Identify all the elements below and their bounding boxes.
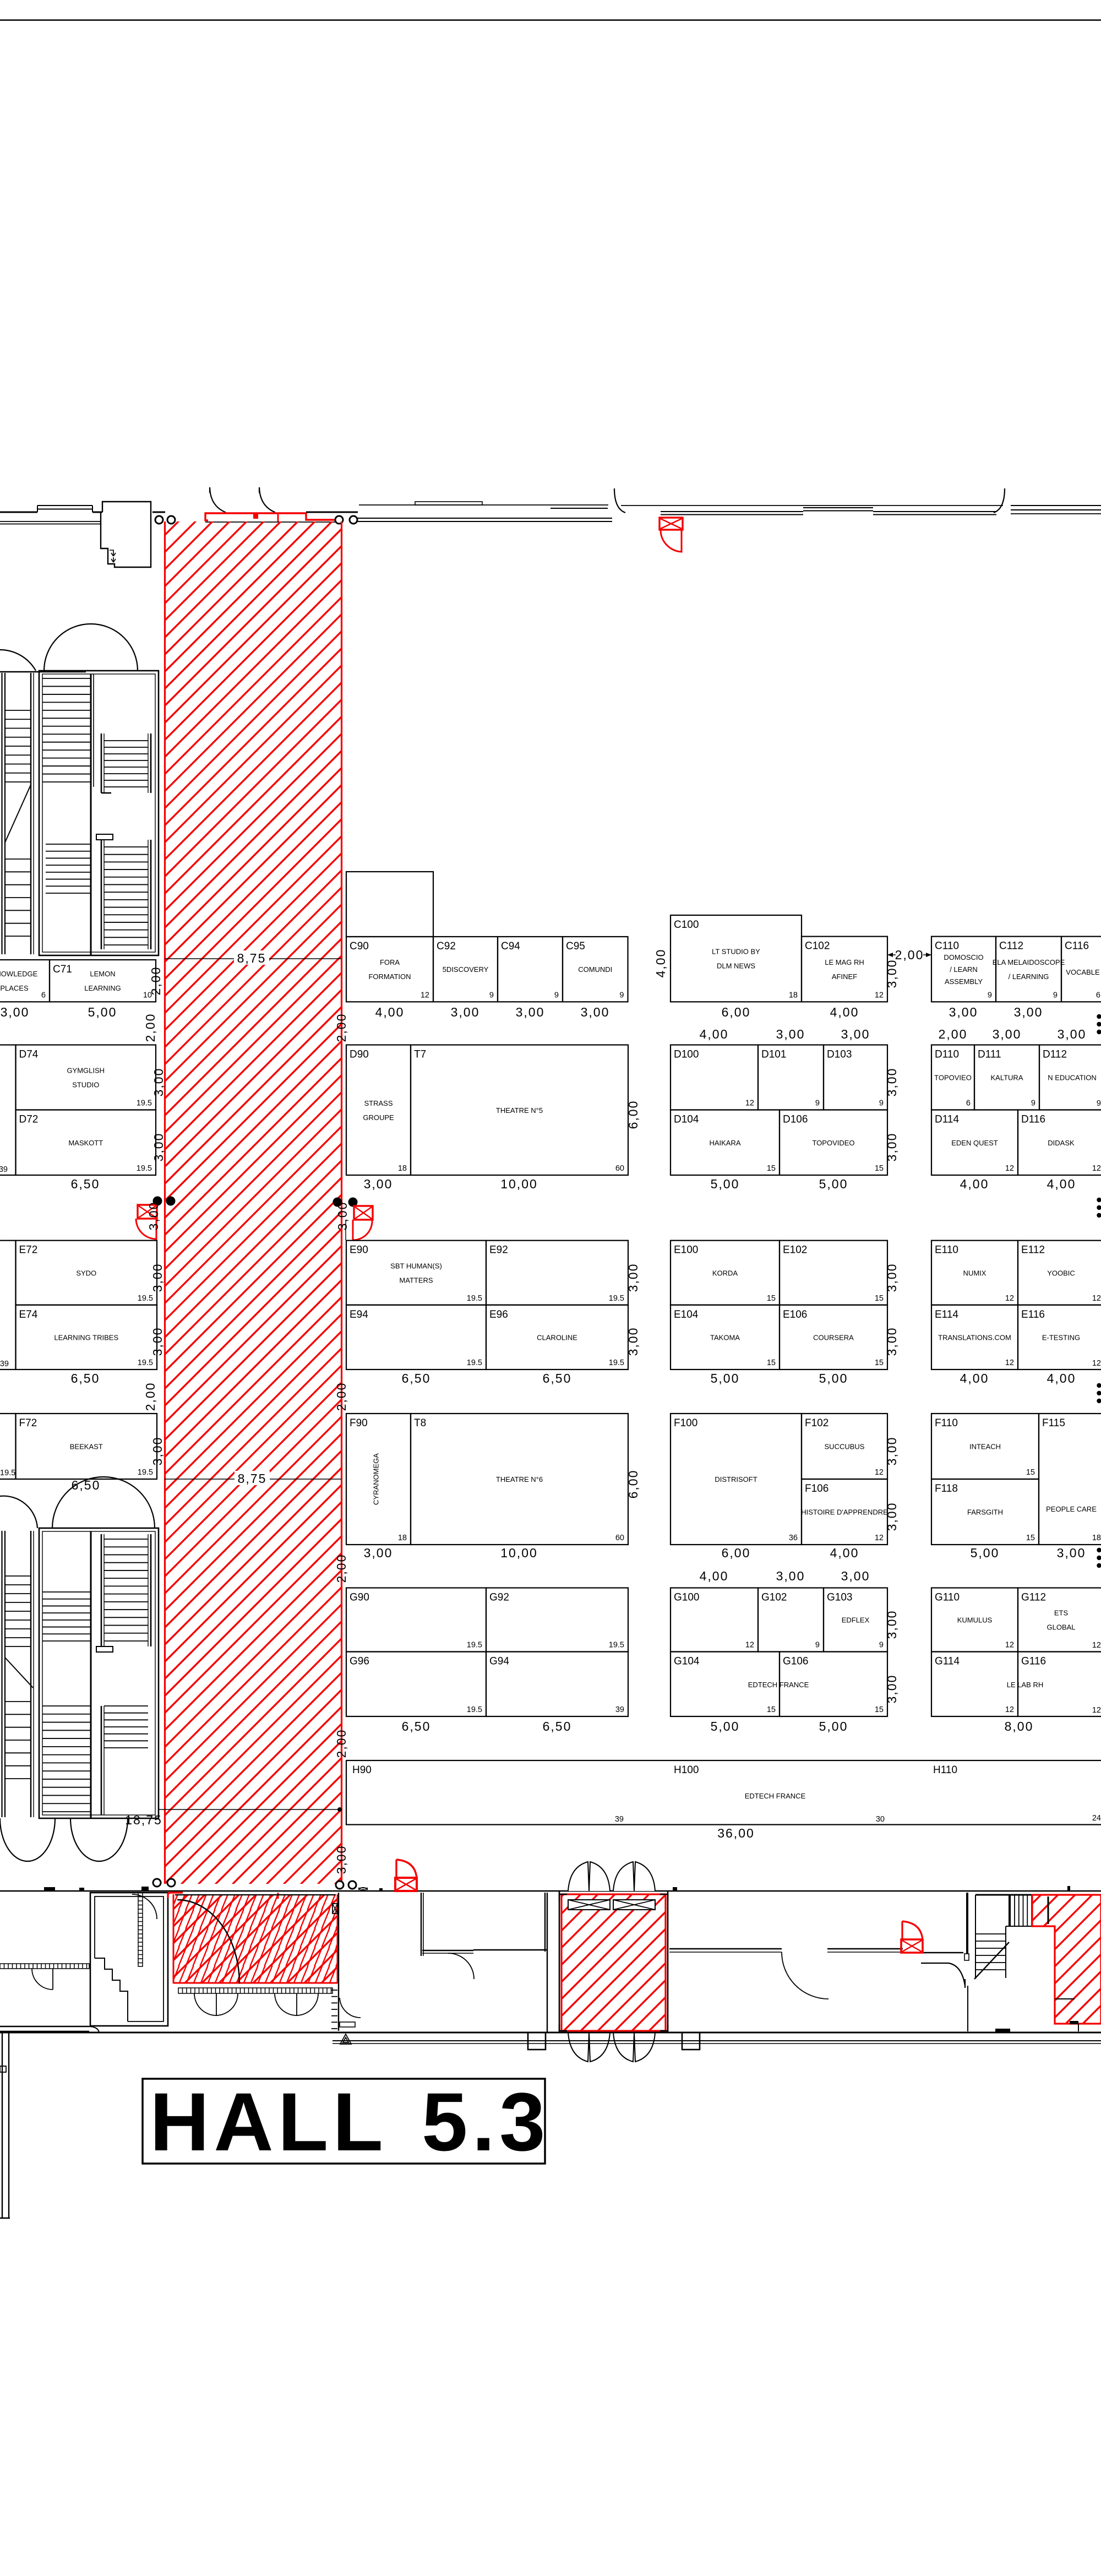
svg-text:6,50: 6,50 xyxy=(71,1177,100,1191)
svg-text:18: 18 xyxy=(398,1534,407,1542)
svg-text:5,00: 5,00 xyxy=(819,1719,848,1733)
svg-text:C110: C110 xyxy=(935,941,959,952)
svg-text:THEATRE N°5: THEATRE N°5 xyxy=(496,1106,543,1115)
svg-text:G106: G106 xyxy=(783,1656,808,1667)
svg-text:AFINEF: AFINEF xyxy=(832,972,857,981)
svg-text:VOCABLE: VOCABLE xyxy=(1066,968,1100,976)
svg-text:8,75: 8,75 xyxy=(238,1471,267,1486)
svg-text:18: 18 xyxy=(789,991,798,999)
svg-text:12: 12 xyxy=(875,1534,884,1542)
svg-text:12: 12 xyxy=(1092,1164,1101,1173)
svg-text:3,00: 3,00 xyxy=(334,1845,348,1874)
svg-text:5DISCOVERY: 5DISCOVERY xyxy=(443,965,489,974)
svg-text:3,00: 3,00 xyxy=(776,1569,805,1583)
svg-text:E114: E114 xyxy=(935,1309,958,1320)
svg-text:KALTURA: KALTURA xyxy=(991,1074,1023,1082)
svg-text:3,00: 3,00 xyxy=(885,1133,899,1162)
svg-text:15: 15 xyxy=(875,1294,884,1303)
svg-text:3,00: 3,00 xyxy=(516,1005,545,1019)
svg-text:5,00: 5,00 xyxy=(971,1546,1000,1560)
svg-text:STUDIO: STUDIO xyxy=(72,1081,99,1089)
svg-text:F102: F102 xyxy=(805,1417,829,1429)
svg-text:19.5: 19.5 xyxy=(137,1099,152,1108)
svg-text:DOMOSCIO: DOMOSCIO xyxy=(944,953,983,961)
svg-text:EDTECH FRANCE: EDTECH FRANCE xyxy=(745,1792,806,1800)
svg-text:KUMULUS: KUMULUS xyxy=(957,1616,993,1624)
svg-text:D103: D103 xyxy=(827,1049,852,1061)
svg-text:SBT HUMAN(S): SBT HUMAN(S) xyxy=(390,1262,442,1270)
svg-text:2,00: 2,00 xyxy=(939,1027,968,1041)
svg-text:3,00: 3,00 xyxy=(1,1005,30,1019)
svg-text:30: 30 xyxy=(876,1815,885,1824)
svg-text:D100: D100 xyxy=(674,1049,699,1061)
svg-text:ELA MELAIDOSCOPE: ELA MELAIDOSCOPE xyxy=(993,958,1065,966)
svg-text:LEARNING TRIBES: LEARNING TRIBES xyxy=(54,1333,118,1341)
svg-text:2,00: 2,00 xyxy=(334,1554,348,1583)
svg-text:G112: G112 xyxy=(1021,1592,1046,1604)
svg-text:ETS: ETS xyxy=(1054,1609,1069,1617)
svg-text:C112: C112 xyxy=(999,941,1023,952)
svg-text:4,00: 4,00 xyxy=(1047,1371,1076,1385)
svg-text:19.5: 19.5 xyxy=(467,1358,482,1367)
svg-text:12: 12 xyxy=(1005,1164,1014,1173)
svg-text:19.5: 19.5 xyxy=(467,1294,482,1303)
svg-text:LE MAG RH: LE MAG RH xyxy=(825,958,864,966)
svg-text:18: 18 xyxy=(398,1164,407,1173)
svg-text:19.5: 19.5 xyxy=(467,1705,482,1714)
svg-text:E92: E92 xyxy=(489,1244,508,1256)
svg-text:9: 9 xyxy=(1097,1099,1101,1108)
svg-text:9: 9 xyxy=(815,1641,820,1650)
svg-text:4,00: 4,00 xyxy=(700,1027,729,1041)
svg-text:EDEN QUEST: EDEN QUEST xyxy=(951,1139,998,1147)
svg-text:15: 15 xyxy=(875,1164,884,1173)
svg-text:2,00: 2,00 xyxy=(149,966,163,996)
svg-text:G94: G94 xyxy=(489,1656,509,1667)
svg-text:FARSGITH: FARSGITH xyxy=(967,1508,1003,1517)
svg-text:6,50: 6,50 xyxy=(543,1719,572,1733)
svg-text:24: 24 xyxy=(1092,1814,1101,1823)
svg-text:H110: H110 xyxy=(933,1764,957,1776)
svg-text:E96: E96 xyxy=(489,1309,508,1320)
svg-text:4,00: 4,00 xyxy=(375,1005,405,1019)
svg-text:4,00: 4,00 xyxy=(960,1371,989,1385)
svg-text:9: 9 xyxy=(619,991,624,999)
svg-text:6,00: 6,00 xyxy=(722,1546,751,1560)
svg-text:D72: D72 xyxy=(19,1114,39,1126)
svg-text:12: 12 xyxy=(1005,1705,1014,1714)
svg-text:60: 60 xyxy=(615,1534,624,1542)
svg-text:12: 12 xyxy=(875,1468,884,1477)
svg-text:12: 12 xyxy=(745,1099,754,1108)
svg-text:3,00: 3,00 xyxy=(335,1202,350,1231)
svg-text:F72: F72 xyxy=(19,1417,37,1429)
svg-text:KORDA: KORDA xyxy=(712,1269,738,1277)
svg-text:BEEKAST: BEEKAST xyxy=(70,1443,103,1451)
svg-text:8,00: 8,00 xyxy=(1005,1719,1034,1733)
svg-text:3,00: 3,00 xyxy=(150,1263,165,1292)
svg-text:LEMON: LEMON xyxy=(90,970,115,978)
svg-text:E-TESTING: E-TESTING xyxy=(1042,1333,1080,1341)
svg-text:19.5: 19.5 xyxy=(609,1294,624,1303)
svg-text:F106: F106 xyxy=(805,1483,829,1494)
svg-text:10,00: 10,00 xyxy=(500,1546,538,1560)
svg-text:6,00: 6,00 xyxy=(722,1005,751,1019)
svg-text:GLOBAL: GLOBAL xyxy=(1047,1623,1075,1632)
svg-text:LT STUDIO BY: LT STUDIO BY xyxy=(712,948,760,956)
svg-text:3,00: 3,00 xyxy=(949,1005,978,1019)
svg-text:3,00: 3,00 xyxy=(151,1133,166,1162)
svg-text:E72: E72 xyxy=(19,1244,38,1256)
svg-text:D90: D90 xyxy=(350,1049,369,1061)
svg-text:12: 12 xyxy=(1092,1359,1101,1368)
svg-text:19.5: 19.5 xyxy=(138,1468,153,1477)
svg-text:3,00: 3,00 xyxy=(885,1675,899,1704)
svg-text:5.3: 5.3 xyxy=(422,2075,550,2168)
svg-text:6,00: 6,00 xyxy=(626,1100,640,1129)
svg-text:C92: C92 xyxy=(437,941,456,952)
svg-text:9: 9 xyxy=(489,991,494,999)
svg-text:39: 39 xyxy=(615,1705,624,1714)
svg-text:C102: C102 xyxy=(805,941,830,952)
svg-text:18: 18 xyxy=(1092,1534,1101,1542)
svg-text:G102: G102 xyxy=(761,1592,787,1604)
svg-text:LE LAB RH: LE LAB RH xyxy=(1007,1681,1043,1689)
svg-text:39: 39 xyxy=(0,1360,9,1368)
svg-text:3,00: 3,00 xyxy=(885,1068,899,1097)
svg-text:E90: E90 xyxy=(350,1244,368,1256)
svg-text:15: 15 xyxy=(767,1294,776,1303)
svg-text:2,00: 2,00 xyxy=(143,1013,157,1042)
svg-text:C95: C95 xyxy=(566,941,585,952)
svg-text:HAIKARA: HAIKARA xyxy=(709,1139,740,1147)
svg-text:FORA: FORA xyxy=(380,958,400,966)
svg-text:9: 9 xyxy=(1053,991,1058,999)
svg-text:FORMATION: FORMATION xyxy=(368,972,411,981)
svg-text:2,00: 2,00 xyxy=(895,948,924,962)
svg-text:15: 15 xyxy=(875,1705,884,1714)
svg-text:12: 12 xyxy=(421,991,429,999)
svg-text:E112: E112 xyxy=(1021,1244,1045,1256)
svg-text:3,00: 3,00 xyxy=(885,1437,899,1466)
svg-text:15: 15 xyxy=(767,1358,776,1367)
svg-text:G100: G100 xyxy=(674,1592,699,1604)
svg-text:T7: T7 xyxy=(414,1049,426,1061)
svg-text:12: 12 xyxy=(1005,1358,1014,1367)
svg-text:MATTERS: MATTERS xyxy=(399,1276,433,1284)
svg-text:9: 9 xyxy=(1031,1099,1035,1108)
svg-text:5,00: 5,00 xyxy=(88,1005,117,1019)
svg-text:MASKOTT: MASKOTT xyxy=(68,1139,103,1147)
svg-text:19.5: 19.5 xyxy=(137,1164,152,1173)
svg-text:36: 36 xyxy=(789,1534,798,1542)
svg-text:3,00: 3,00 xyxy=(993,1027,1022,1041)
svg-text:3,00: 3,00 xyxy=(581,1005,610,1019)
svg-text:5,00: 5,00 xyxy=(711,1371,740,1385)
svg-text:CYRANOMEGA: CYRANOMEGA xyxy=(372,1453,380,1505)
svg-text:39: 39 xyxy=(615,1815,624,1824)
svg-text:SYDO: SYDO xyxy=(76,1269,96,1277)
svg-text:E110: E110 xyxy=(935,1244,958,1256)
svg-text:12: 12 xyxy=(1092,1641,1101,1650)
svg-text:D116: D116 xyxy=(1021,1114,1045,1126)
svg-text:4,00: 4,00 xyxy=(700,1569,729,1583)
svg-text:KNOWLEDGE: KNOWLEDGE xyxy=(0,970,38,978)
svg-text:YOOBIC: YOOBIC xyxy=(1047,1269,1075,1277)
svg-text:C71: C71 xyxy=(53,964,72,975)
svg-text:DIDASK: DIDASK xyxy=(1048,1139,1075,1147)
svg-text:D111: D111 xyxy=(978,1049,1001,1061)
svg-text:9: 9 xyxy=(879,1641,884,1650)
svg-text:5,00: 5,00 xyxy=(711,1177,740,1191)
svg-text:T8: T8 xyxy=(414,1417,426,1429)
svg-text:G90: G90 xyxy=(350,1592,369,1604)
svg-text:12: 12 xyxy=(1005,1294,1014,1303)
svg-text:SUCCUBUS: SUCCUBUS xyxy=(825,1443,865,1451)
svg-text:5,00: 5,00 xyxy=(819,1177,848,1191)
svg-text:9: 9 xyxy=(554,991,559,999)
svg-text:G114: G114 xyxy=(935,1656,960,1667)
svg-text:G92: G92 xyxy=(489,1592,509,1604)
svg-text:ASSEMBLY: ASSEMBLY xyxy=(945,977,983,986)
svg-text:TOPOVIEO: TOPOVIEO xyxy=(934,1074,972,1082)
svg-text:TOPOVIDEO: TOPOVIDEO xyxy=(812,1139,854,1147)
svg-text:6,50: 6,50 xyxy=(72,1478,101,1492)
svg-text:3,00: 3,00 xyxy=(1057,1546,1086,1560)
svg-text:E74: E74 xyxy=(19,1309,38,1320)
svg-text:6: 6 xyxy=(41,991,46,999)
svg-text:2,00: 2,00 xyxy=(334,1013,348,1042)
svg-text:DISTRISOFT: DISTRISOFT xyxy=(715,1475,757,1483)
svg-text:3,00: 3,00 xyxy=(151,1068,166,1097)
svg-text:HALL: HALL xyxy=(150,2075,388,2168)
svg-text:3,00: 3,00 xyxy=(364,1177,393,1191)
svg-text:3,00: 3,00 xyxy=(150,1437,165,1466)
svg-text:9: 9 xyxy=(988,991,992,999)
svg-text:E104: E104 xyxy=(674,1309,699,1320)
svg-text:6,50: 6,50 xyxy=(543,1371,572,1385)
svg-text:TRANSLATIONS.COM: TRANSLATIONS.COM xyxy=(938,1333,1011,1341)
svg-text:3,00: 3,00 xyxy=(841,1027,870,1041)
svg-text:E102: E102 xyxy=(783,1244,807,1256)
svg-text:E106: E106 xyxy=(783,1309,807,1320)
svg-text:D114: D114 xyxy=(935,1114,959,1126)
svg-text:3,00: 3,00 xyxy=(146,1202,161,1231)
svg-text:19.5: 19.5 xyxy=(0,1469,15,1477)
svg-text:D112: D112 xyxy=(1043,1049,1067,1061)
svg-text:3,00: 3,00 xyxy=(364,1546,393,1560)
svg-text:15: 15 xyxy=(875,1358,884,1367)
svg-text:D74: D74 xyxy=(19,1049,39,1061)
svg-text:COURSERA: COURSERA xyxy=(813,1333,854,1341)
svg-text:N EDUCATION: N EDUCATION xyxy=(1048,1074,1097,1082)
svg-text:/ LEARNING: / LEARNING xyxy=(1009,972,1049,981)
svg-text:INTEACH: INTEACH xyxy=(969,1443,1001,1451)
svg-text:6,50: 6,50 xyxy=(71,1371,100,1385)
svg-text:D110: D110 xyxy=(935,1049,959,1061)
svg-text:C116: C116 xyxy=(1065,941,1089,952)
svg-text:8,75: 8,75 xyxy=(237,951,266,965)
svg-text:3,00: 3,00 xyxy=(1014,1005,1043,1019)
svg-text:/ LEARN: / LEARN xyxy=(950,965,978,974)
svg-text:EDFLEX: EDFLEX xyxy=(842,1616,870,1624)
svg-text:19.5: 19.5 xyxy=(467,1641,482,1650)
svg-text:G104: G104 xyxy=(674,1656,700,1667)
svg-text:PLACES: PLACES xyxy=(0,984,29,992)
svg-text:3,00: 3,00 xyxy=(626,1263,640,1292)
svg-text:3,00: 3,00 xyxy=(841,1569,870,1583)
svg-text:D106: D106 xyxy=(783,1114,808,1126)
svg-text:12: 12 xyxy=(875,991,884,999)
svg-text:6,00: 6,00 xyxy=(626,1470,640,1499)
svg-text:12: 12 xyxy=(1005,1641,1014,1650)
svg-text:4,00: 4,00 xyxy=(830,1005,859,1019)
svg-text:NUMIX: NUMIX xyxy=(963,1269,986,1277)
svg-text:G110: G110 xyxy=(935,1592,960,1604)
svg-text:2,00: 2,00 xyxy=(143,1382,157,1411)
svg-text:COMUNDI: COMUNDI xyxy=(578,965,612,974)
svg-text:G96: G96 xyxy=(350,1656,369,1667)
svg-text:6: 6 xyxy=(966,1099,971,1108)
svg-text:F115: F115 xyxy=(1042,1417,1065,1429)
svg-text:C90: C90 xyxy=(350,941,369,952)
svg-text:PEOPLE CARE: PEOPLE CARE xyxy=(1046,1505,1097,1513)
svg-text:E116: E116 xyxy=(1021,1309,1045,1320)
svg-text:HISTOIRE D'APPRENDRE: HISTOIRE D'APPRENDRE xyxy=(801,1508,888,1517)
svg-text:3,00: 3,00 xyxy=(1058,1027,1087,1041)
svg-text:10,00: 10,00 xyxy=(500,1177,538,1191)
svg-text:EDTECH FRANCE: EDTECH FRANCE xyxy=(748,1681,809,1689)
svg-text:3,00: 3,00 xyxy=(150,1327,165,1356)
svg-text:2,00: 2,00 xyxy=(334,1382,348,1411)
svg-text:D101: D101 xyxy=(761,1049,786,1061)
svg-text:12: 12 xyxy=(745,1641,754,1650)
svg-text:E100: E100 xyxy=(674,1244,698,1256)
svg-text:6,50: 6,50 xyxy=(402,1719,431,1733)
svg-text:G116: G116 xyxy=(1021,1656,1046,1667)
svg-text:STRASS: STRASS xyxy=(364,1099,393,1107)
svg-text:6,50: 6,50 xyxy=(402,1371,431,1385)
svg-text:3,00: 3,00 xyxy=(885,1610,899,1639)
svg-text:H100: H100 xyxy=(674,1764,699,1776)
svg-text:3,00: 3,00 xyxy=(451,1005,480,1019)
svg-text:4,00: 4,00 xyxy=(960,1177,989,1191)
svg-text:15: 15 xyxy=(1026,1468,1035,1477)
svg-text:19.5: 19.5 xyxy=(609,1358,624,1367)
svg-text:15: 15 xyxy=(1026,1534,1035,1542)
svg-text:36,00: 36,00 xyxy=(717,1826,755,1840)
svg-text:12: 12 xyxy=(1092,1706,1101,1715)
svg-text:C94: C94 xyxy=(501,941,520,952)
svg-text:4,00: 4,00 xyxy=(830,1546,859,1560)
svg-text:F90: F90 xyxy=(350,1417,368,1429)
svg-text:4,00: 4,00 xyxy=(653,949,668,978)
svg-text:D104: D104 xyxy=(674,1114,699,1126)
svg-text:THEATRE N°6: THEATRE N°6 xyxy=(496,1475,543,1483)
svg-text:4,00: 4,00 xyxy=(1047,1177,1076,1191)
svg-text:19.5: 19.5 xyxy=(138,1358,153,1367)
svg-text:E94: E94 xyxy=(350,1309,368,1320)
svg-text:9: 9 xyxy=(879,1099,884,1108)
svg-text:DLM NEWS: DLM NEWS xyxy=(717,962,755,970)
svg-text:C100: C100 xyxy=(674,919,699,931)
svg-text:19.5: 19.5 xyxy=(138,1294,153,1303)
svg-text:3,00: 3,00 xyxy=(626,1327,640,1356)
svg-text:15: 15 xyxy=(767,1164,776,1173)
svg-text:F118: F118 xyxy=(935,1483,958,1494)
svg-text:12: 12 xyxy=(1092,1294,1101,1303)
svg-text:60: 60 xyxy=(615,1164,624,1173)
svg-text:3,00: 3,00 xyxy=(885,1263,899,1292)
svg-text:5,00: 5,00 xyxy=(819,1371,848,1385)
svg-text:GROUPE: GROUPE xyxy=(363,1113,394,1122)
svg-text:9: 9 xyxy=(815,1099,820,1108)
svg-text:G103: G103 xyxy=(827,1592,852,1604)
svg-text:15: 15 xyxy=(767,1705,776,1714)
svg-text:3,00: 3,00 xyxy=(776,1027,805,1041)
svg-text:F110: F110 xyxy=(935,1417,958,1429)
svg-text:GYMGLISH: GYMGLISH xyxy=(67,1067,105,1075)
svg-text:3,00: 3,00 xyxy=(885,1327,899,1356)
svg-text:2,00: 2,00 xyxy=(334,1729,348,1758)
svg-text:19.5: 19.5 xyxy=(609,1641,624,1650)
svg-text:6: 6 xyxy=(1096,991,1100,999)
svg-text:39: 39 xyxy=(0,1165,8,1174)
svg-text:3,00: 3,00 xyxy=(885,1502,899,1531)
svg-text:F100: F100 xyxy=(674,1417,697,1429)
svg-text:H90: H90 xyxy=(352,1764,372,1776)
svg-text:TAKOMA: TAKOMA xyxy=(710,1333,740,1341)
svg-text:CLAROLINE: CLAROLINE xyxy=(537,1333,577,1341)
svg-text:LEARNING: LEARNING xyxy=(84,984,121,992)
svg-text:5,00: 5,00 xyxy=(711,1719,740,1733)
svg-text:3,00: 3,00 xyxy=(885,959,899,988)
